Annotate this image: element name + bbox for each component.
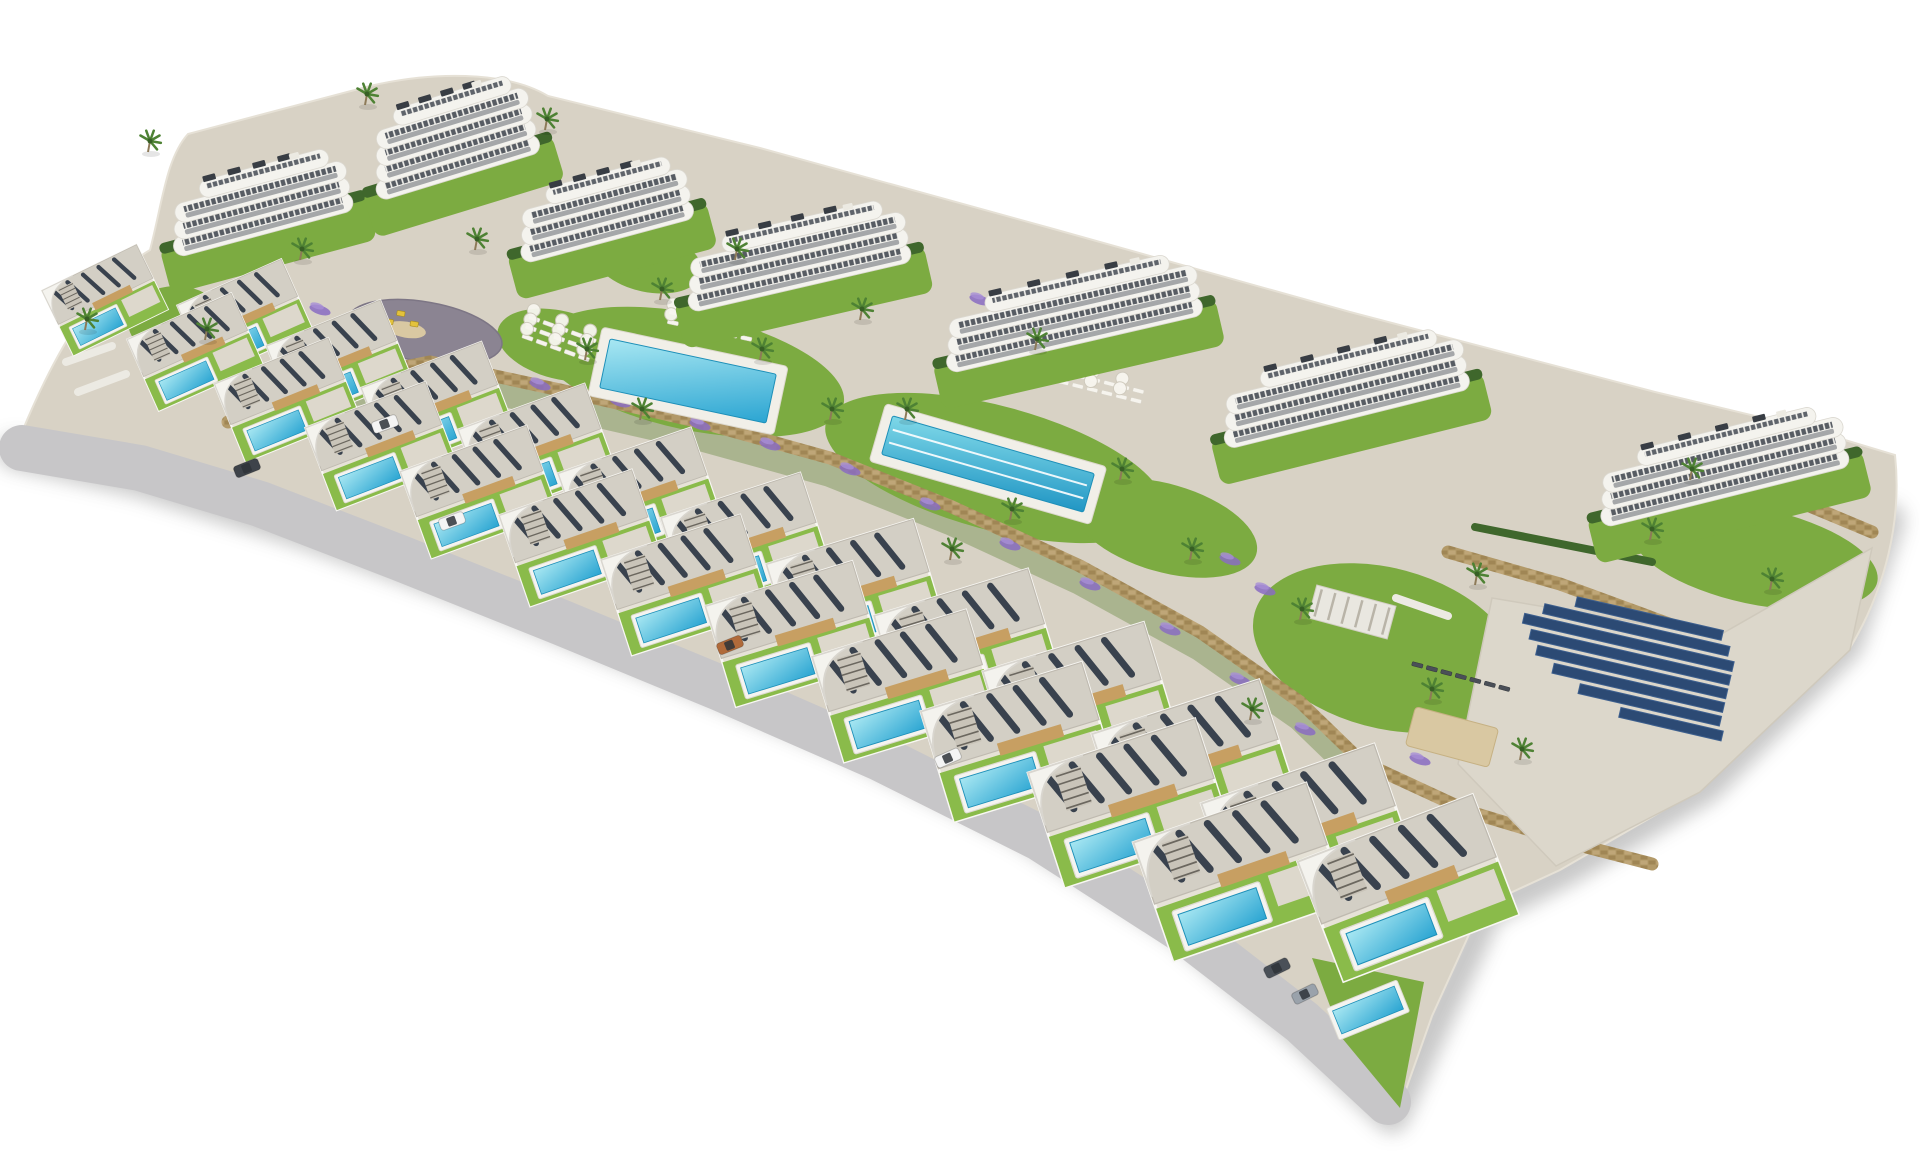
palm-crown: [1120, 467, 1125, 472]
palm-crown: [760, 347, 765, 352]
palm-shadow: [1764, 589, 1782, 595]
palm-shadow: [469, 249, 487, 255]
palm-shadow: [729, 259, 747, 265]
palm-shadow: [199, 339, 217, 345]
palm-shadow: [1294, 619, 1312, 625]
palm-crown: [860, 307, 865, 312]
palm-crown: [905, 407, 910, 412]
palm-crown: [205, 327, 210, 332]
palm-crown: [1035, 337, 1040, 342]
palm-shadow: [1424, 699, 1442, 705]
palm-crown: [85, 317, 90, 322]
palm-crown: [1770, 577, 1775, 582]
playground-equipment: [396, 310, 405, 316]
palm-shadow: [1514, 759, 1532, 765]
palm-shadow: [1244, 719, 1262, 725]
palm-crown: [660, 287, 665, 292]
palm-shadow: [1114, 479, 1132, 485]
palm-crown: [1475, 572, 1480, 577]
palm-shadow: [1004, 519, 1022, 525]
palm-shadow: [899, 419, 917, 425]
palm-shadow: [539, 129, 557, 135]
palm-crown: [1010, 507, 1015, 512]
palm-crown: [365, 92, 370, 97]
palm-crown: [950, 547, 955, 552]
palm-shadow: [142, 151, 160, 157]
palm-crown: [1300, 607, 1305, 612]
palm-shadow: [1184, 559, 1202, 565]
palm-crown: [475, 237, 480, 242]
palm-shadow: [579, 359, 597, 365]
palm-shadow: [1644, 539, 1662, 545]
palm-shadow: [359, 104, 377, 110]
palm-shadow: [654, 299, 672, 305]
palm-crown: [1430, 687, 1435, 692]
palm-crown: [545, 117, 550, 122]
palm-crown: [585, 347, 590, 352]
palm-shadow: [79, 329, 97, 335]
palm-crown: [735, 247, 740, 252]
palm-shadow: [754, 359, 772, 365]
palm-shadow: [1029, 349, 1047, 355]
palm-tree: [140, 131, 160, 157]
palm-crown: [1190, 547, 1195, 552]
palm-crown: [148, 139, 153, 144]
architectural-render: Aerial 3D architectural rendering of a h…: [0, 0, 1920, 1152]
palm-crown: [1520, 747, 1525, 752]
palm-crown: [1650, 527, 1655, 532]
palm-shadow: [824, 419, 842, 425]
palm-crown: [640, 407, 645, 412]
palm-shadow: [634, 419, 652, 425]
palm-shadow: [294, 259, 312, 265]
site-plan-svg: [0, 0, 1920, 1152]
palm-shadow: [1684, 479, 1702, 485]
palm-crown: [1690, 467, 1695, 472]
palm-shadow: [944, 559, 962, 565]
playground-equipment: [410, 321, 419, 327]
palm-shadow: [854, 319, 872, 325]
palm-shadow: [1469, 584, 1487, 590]
palm-crown: [830, 407, 835, 412]
palm-crown: [300, 247, 305, 252]
palm-crown: [1250, 707, 1255, 712]
